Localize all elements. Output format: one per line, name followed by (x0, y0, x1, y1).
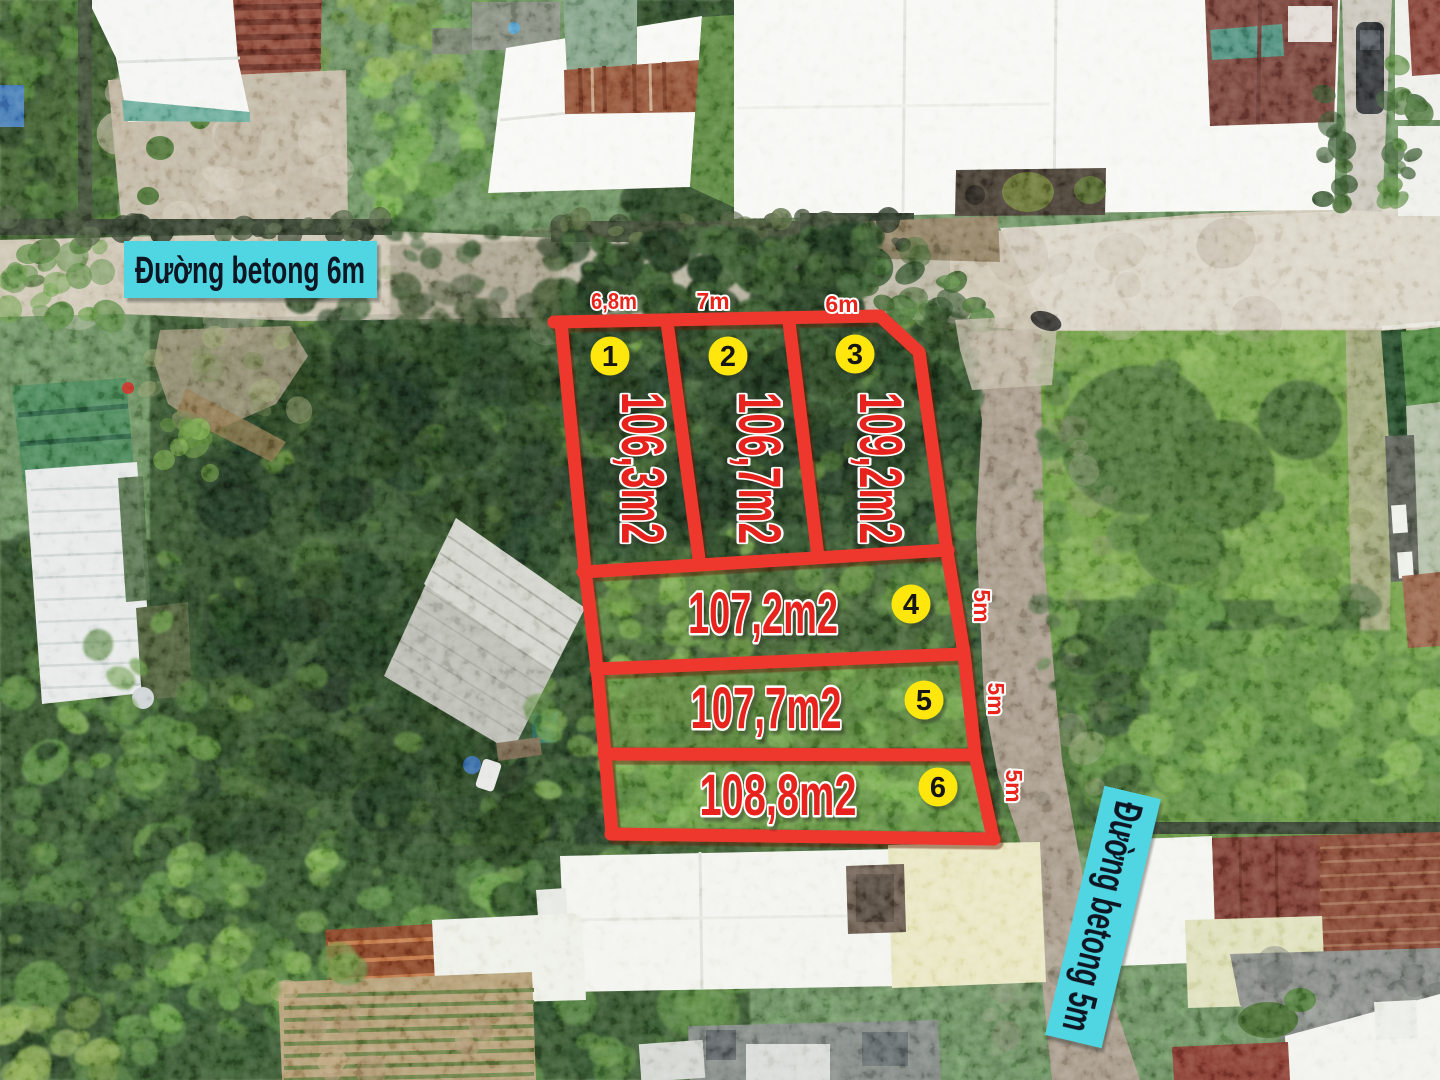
svg-text:6m: 6m (825, 291, 858, 317)
svg-text:5m: 5m (983, 682, 1009, 715)
svg-text:5m: 5m (1001, 769, 1027, 802)
svg-text:7m: 7m (696, 288, 729, 314)
svg-text:3: 3 (847, 339, 863, 371)
svg-text:6,8m: 6,8m (591, 288, 637, 314)
svg-text:1: 1 (602, 341, 618, 373)
svg-text:5m: 5m (969, 589, 995, 622)
svg-text:2: 2 (720, 341, 736, 373)
svg-text:106,7m2: 106,7m2 (726, 392, 793, 544)
svg-text:Đường betong 6m: Đường betong 6m (135, 250, 365, 292)
svg-text:108,8m2: 108,8m2 (700, 763, 857, 828)
svg-text:106,3m2: 106,3m2 (609, 392, 676, 544)
svg-text:107,2m2: 107,2m2 (688, 581, 838, 646)
svg-text:107,7m2: 107,7m2 (691, 676, 842, 741)
svg-text:5: 5 (916, 685, 932, 717)
svg-text:109,2m2: 109,2m2 (847, 392, 914, 544)
svg-text:6: 6 (930, 772, 946, 804)
svg-text:4: 4 (903, 589, 919, 621)
